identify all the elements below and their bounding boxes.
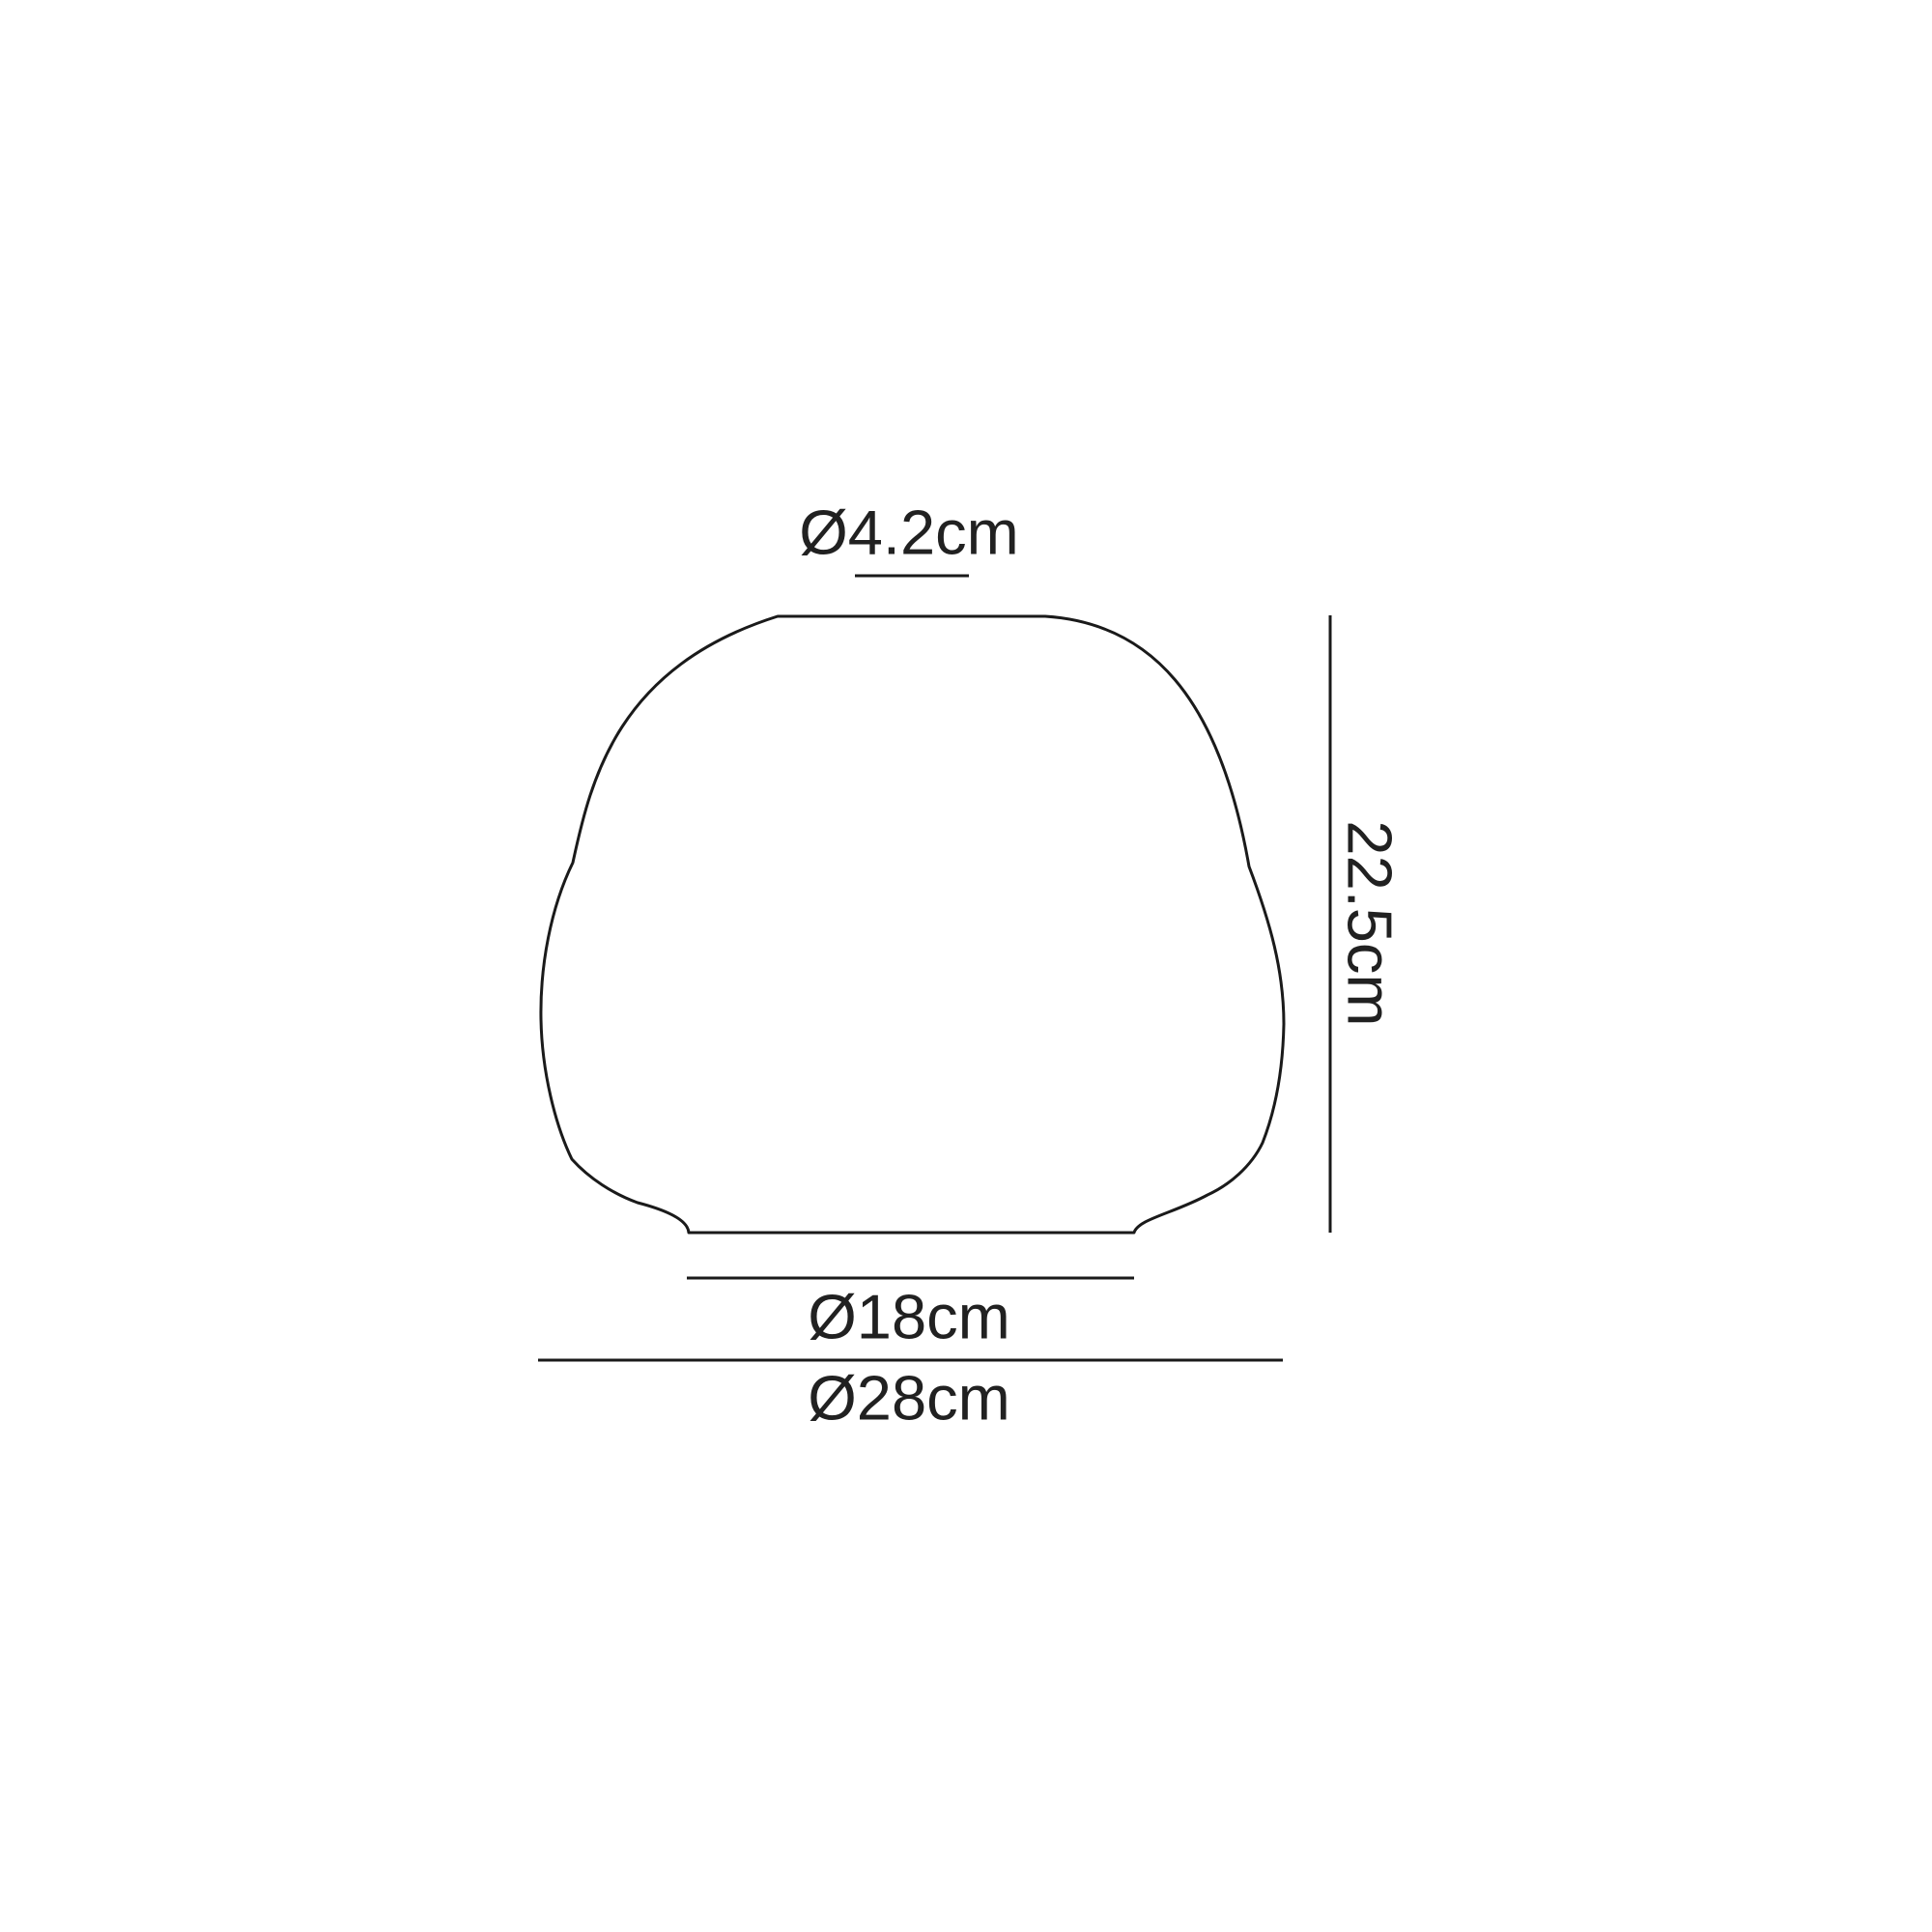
- top-diameter-label: Ø4.2cm: [799, 501, 1019, 564]
- max-diameter-label: Ø28cm: [808, 1367, 1010, 1430]
- dimension-diagram: Ø4.2cm 22.5cm Ø18cm Ø28cm: [0, 0, 1932, 1932]
- shade-outline: [541, 616, 1284, 1233]
- dimension-diagram-svg: [0, 0, 1932, 1932]
- height-label: 22.5cm: [1339, 820, 1402, 1026]
- base-diameter-label: Ø18cm: [808, 1286, 1010, 1349]
